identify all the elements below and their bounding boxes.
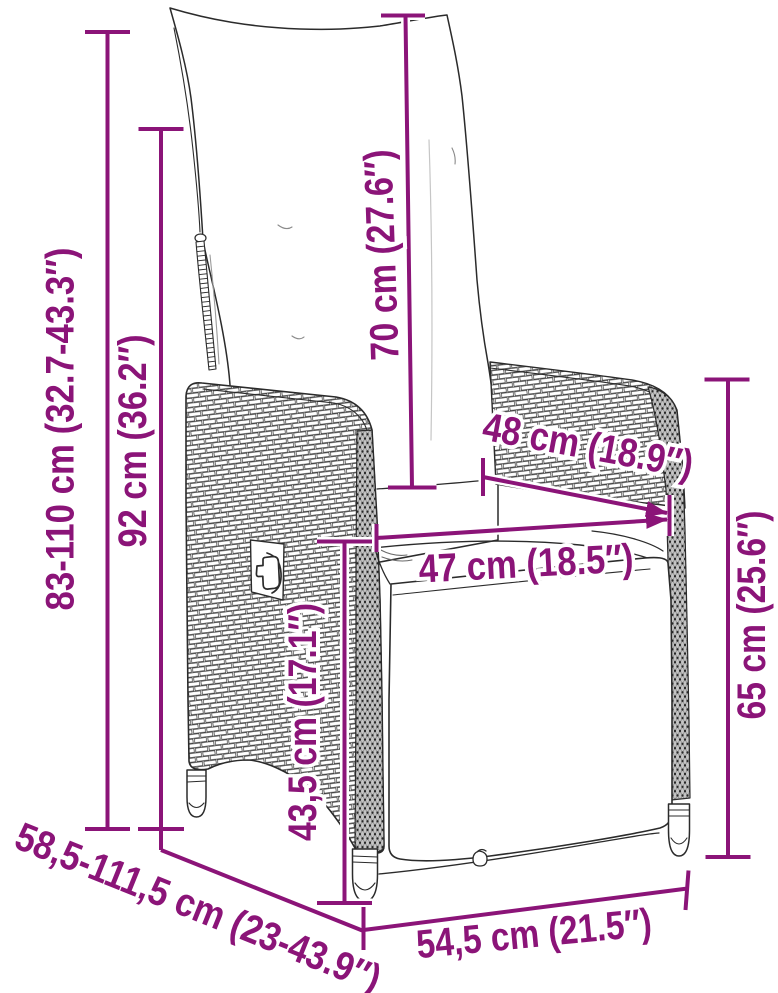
svg-text:43,5 cm (17.1″): 43,5 cm (17.1″)	[281, 603, 325, 841]
svg-text:65 cm (25.6″): 65 cm (25.6″)	[730, 511, 774, 720]
svg-text:83-110 cm (32.7-43.3″): 83-110 cm (32.7-43.3″)	[39, 248, 83, 611]
svg-text:92 cm (36.2″): 92 cm (36.2″)	[111, 335, 155, 548]
svg-text:70 cm (27.6″): 70 cm (27.6″)	[356, 149, 407, 361]
